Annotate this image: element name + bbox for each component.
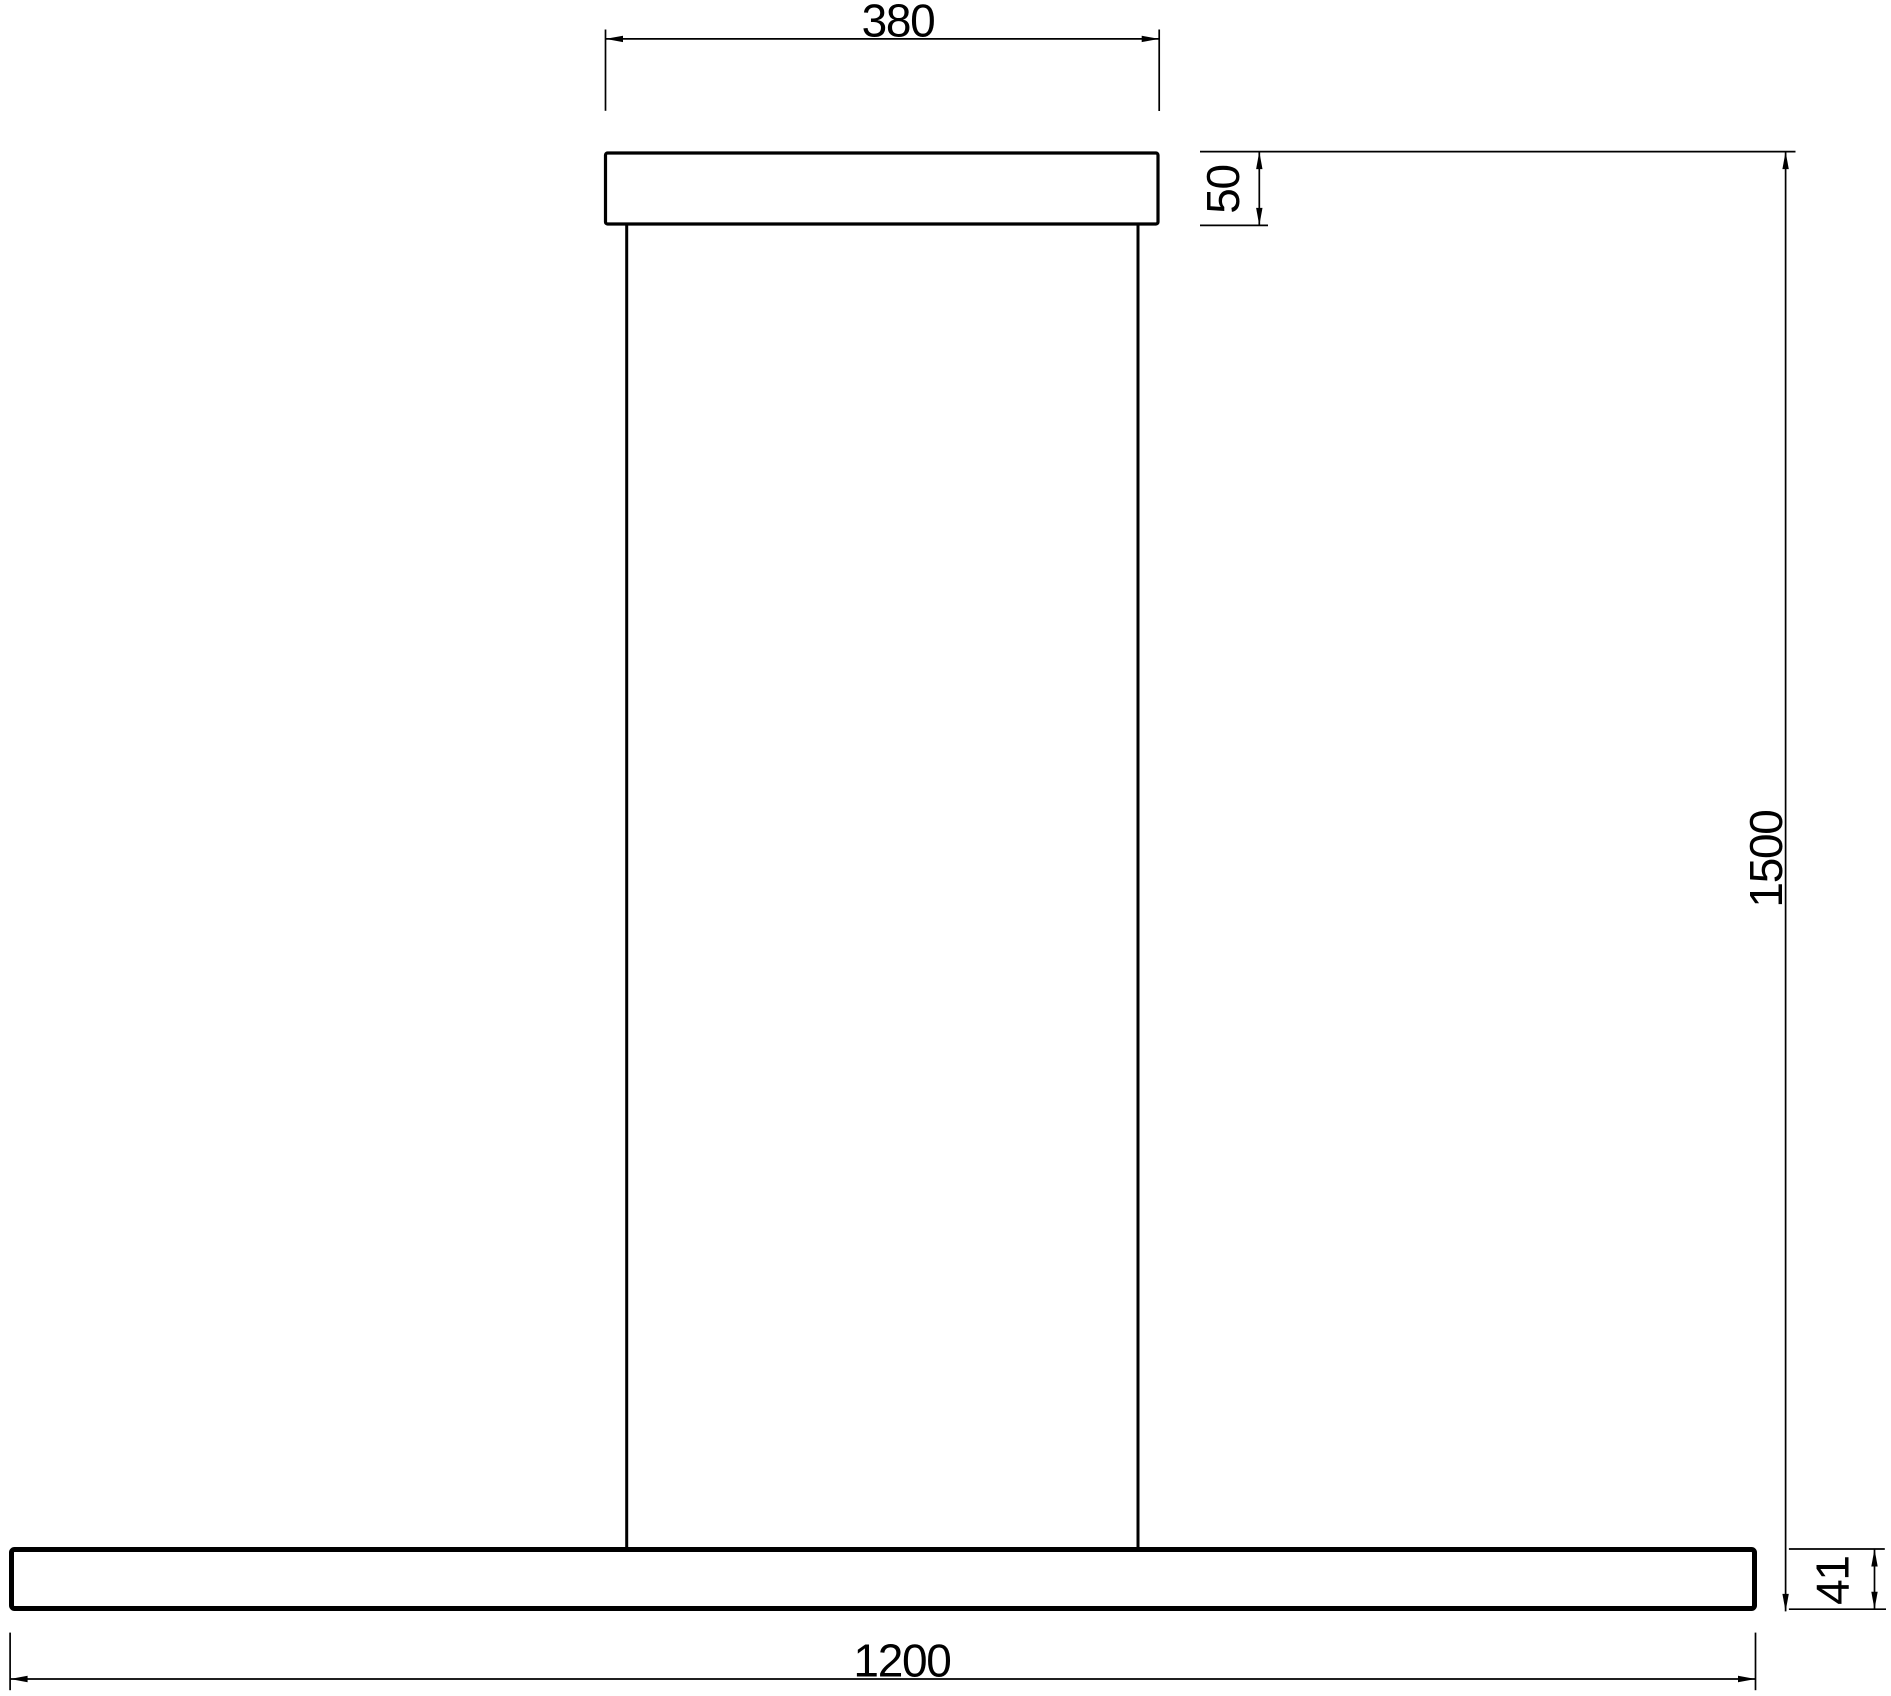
svg-text:380: 380 bbox=[862, 0, 935, 46]
svg-text:1200: 1200 bbox=[853, 1635, 950, 1687]
svg-text:41: 41 bbox=[1807, 1556, 1859, 1605]
svg-text:1500: 1500 bbox=[1740, 810, 1792, 907]
svg-text:50: 50 bbox=[1197, 165, 1249, 214]
